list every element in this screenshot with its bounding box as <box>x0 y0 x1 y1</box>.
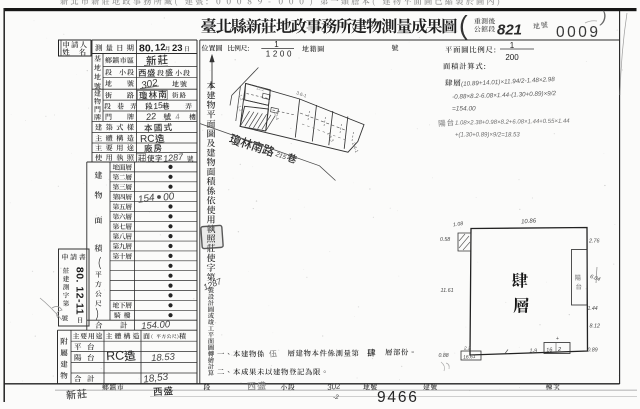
svg-text:18.53: 18.53 <box>151 351 176 364</box>
svg-text:2.76: 2.76 <box>588 239 600 245</box>
svg-text:-2: -2 <box>333 394 339 401</box>
svg-text:00: 00 <box>162 191 175 204</box>
svg-text:0009: 0009 <box>556 24 600 41</box>
svg-text:1.44: 1.44 <box>588 306 598 312</box>
svg-text:1: 1 <box>274 40 279 49</box>
svg-text:1 2 0 0: 1 2 0 0 <box>266 50 292 59</box>
svg-text:+: + <box>556 336 559 342</box>
svg-text:0.89: 0.89 <box>588 348 598 354</box>
svg-text:9466: 9466 <box>377 389 419 404</box>
svg-text:RC: RC <box>106 348 125 363</box>
svg-text:0.58: 0.58 <box>440 237 450 243</box>
svg-text:22: 22 <box>144 111 156 122</box>
svg-text:RC: RC <box>140 134 155 145</box>
svg-text:15: 15 <box>152 100 163 112</box>
svg-text:+(1.30+0.89)×9/2=18.53: +(1.30+0.89)×9/2=18.53 <box>455 133 520 139</box>
svg-text:1-9: 1-9 <box>530 349 538 355</box>
svg-text:=154.00: =154.00 <box>452 106 476 113</box>
svg-text:23: 23 <box>172 43 183 54</box>
svg-text:821: 821 <box>497 22 522 39</box>
svg-text:80.: 80. <box>139 43 154 55</box>
svg-text:8.12: 8.12 <box>590 324 601 330</box>
svg-text:16.61: 16.61 <box>463 354 476 361</box>
svg-text:154.00: 154.00 <box>141 319 171 332</box>
svg-text:200: 200 <box>505 53 519 62</box>
svg-text:302: 302 <box>327 381 342 392</box>
svg-text:1: 1 <box>510 41 515 50</box>
svg-text:11.61: 11.61 <box>441 288 454 294</box>
svg-text:12: 12 <box>155 42 166 54</box>
svg-text:80. 12-11: 80. 12-11 <box>74 267 86 315</box>
svg-text:0.88: 0.88 <box>439 353 449 359</box>
svg-text:10.86: 10.86 <box>521 218 537 225</box>
svg-text:(: ( <box>459 10 468 40</box>
svg-text:2.2: 2.2 <box>463 345 471 351</box>
